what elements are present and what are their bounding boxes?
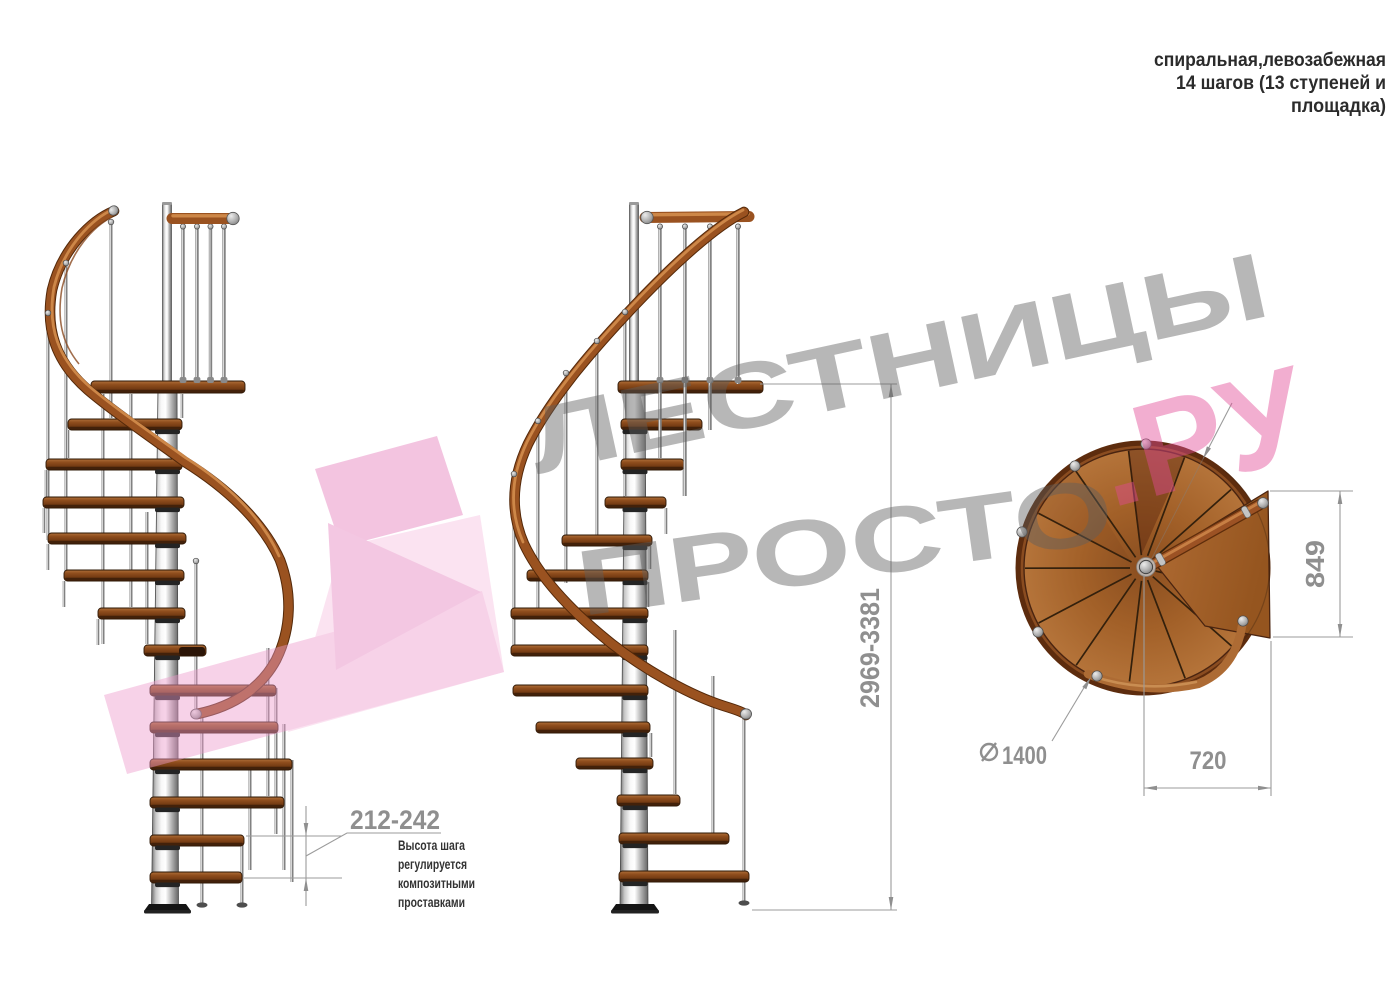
svg-text:площадка): площадка) (1291, 95, 1386, 117)
svg-text:проставками: проставками (398, 895, 465, 910)
svg-text:композитными: композитными (398, 876, 475, 891)
svg-text:720: 720 (1190, 747, 1227, 775)
svg-text:14 шагов (13 ступеней и: 14 шагов (13 ступеней и (1176, 72, 1386, 94)
svg-text:спиральная,левозабежная: спиральная,левозабежная (1154, 49, 1386, 71)
svg-text:1400: 1400 (1002, 742, 1047, 770)
svg-text:регулируется: регулируется (398, 857, 467, 872)
svg-text:212-242: 212-242 (350, 805, 440, 835)
svg-text:849: 849 (1300, 540, 1330, 588)
svg-text:Высота шага: Высота шага (398, 838, 465, 853)
svg-text:2969-3381: 2969-3381 (855, 588, 885, 708)
